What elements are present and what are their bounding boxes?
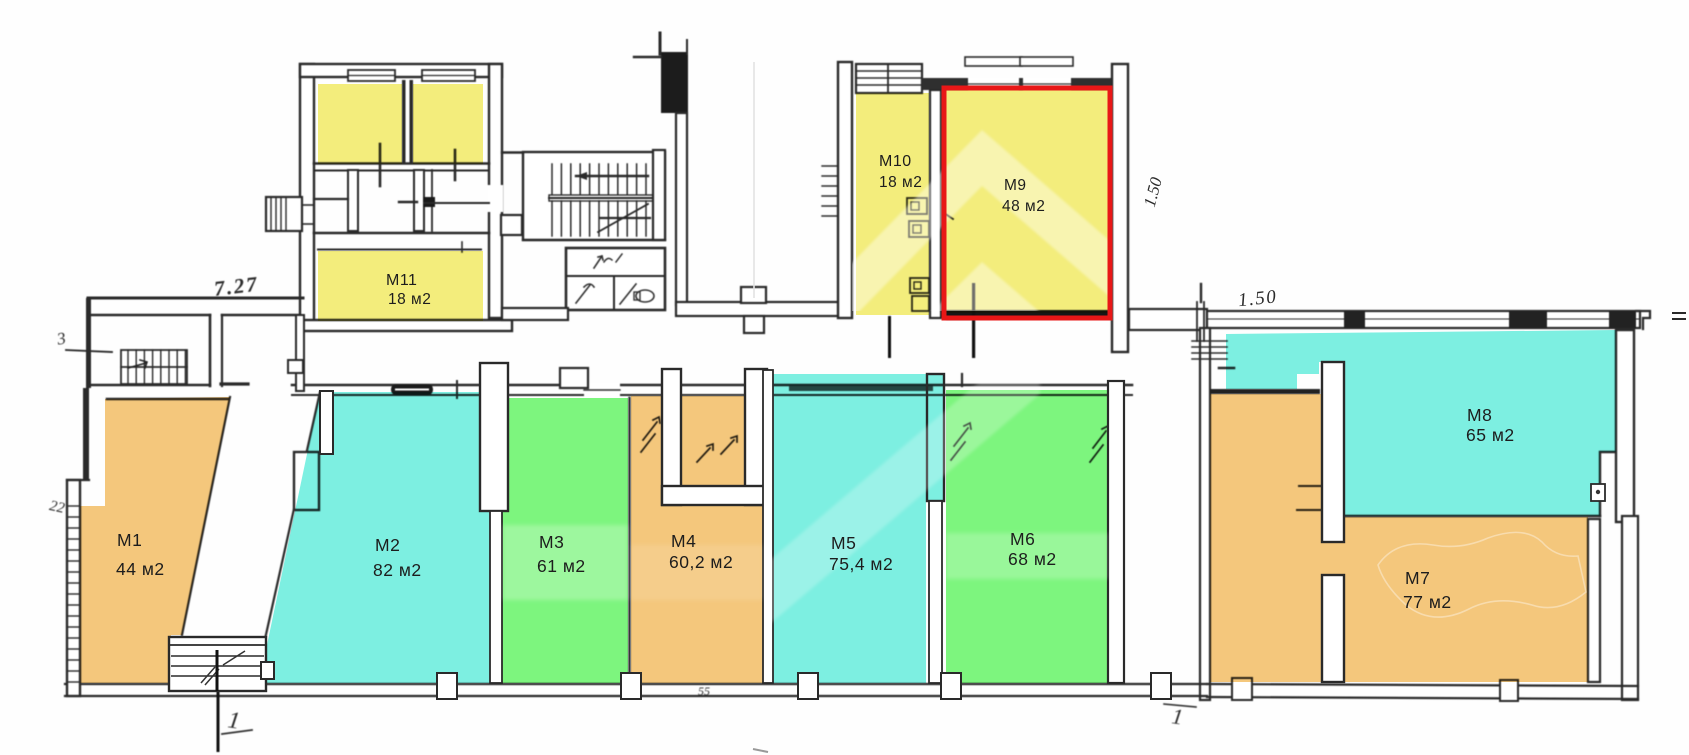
svg-text:82 м2: 82 м2 [373,560,422,580]
svg-text:М11: М11 [386,272,417,289]
svg-text:М10: М10 [879,153,912,170]
svg-text:М9: М9 [1004,177,1027,194]
svg-text:М6: М6 [1010,529,1035,549]
svg-text:55: 55 [698,684,710,698]
svg-text:48 м2: 48 м2 [1002,198,1045,215]
svg-text:44 м2: 44 м2 [116,559,165,579]
svg-text:М4: М4 [671,531,696,551]
svg-text:М5: М5 [831,533,856,553]
svg-text:М2: М2 [375,535,400,555]
svg-text:68 м2: 68 м2 [1008,549,1057,569]
svg-text:77 м2: 77 м2 [1403,592,1452,612]
svg-text:18 м2: 18 м2 [388,291,431,308]
svg-text:18 м2: 18 м2 [879,174,922,191]
svg-text:М1: М1 [117,530,142,550]
svg-text:65 м2: 65 м2 [1466,425,1515,445]
svg-text:75,4 м2: 75,4 м2 [829,554,893,574]
svg-text:М3: М3 [539,532,564,552]
svg-text:60,2 м2: 60,2 м2 [669,552,733,572]
svg-text:М7: М7 [1405,568,1430,588]
svg-text:М8: М8 [1467,405,1492,425]
svg-text:61 м2: 61 м2 [537,556,586,576]
svg-text:1.50: 1.50 [1237,286,1278,311]
